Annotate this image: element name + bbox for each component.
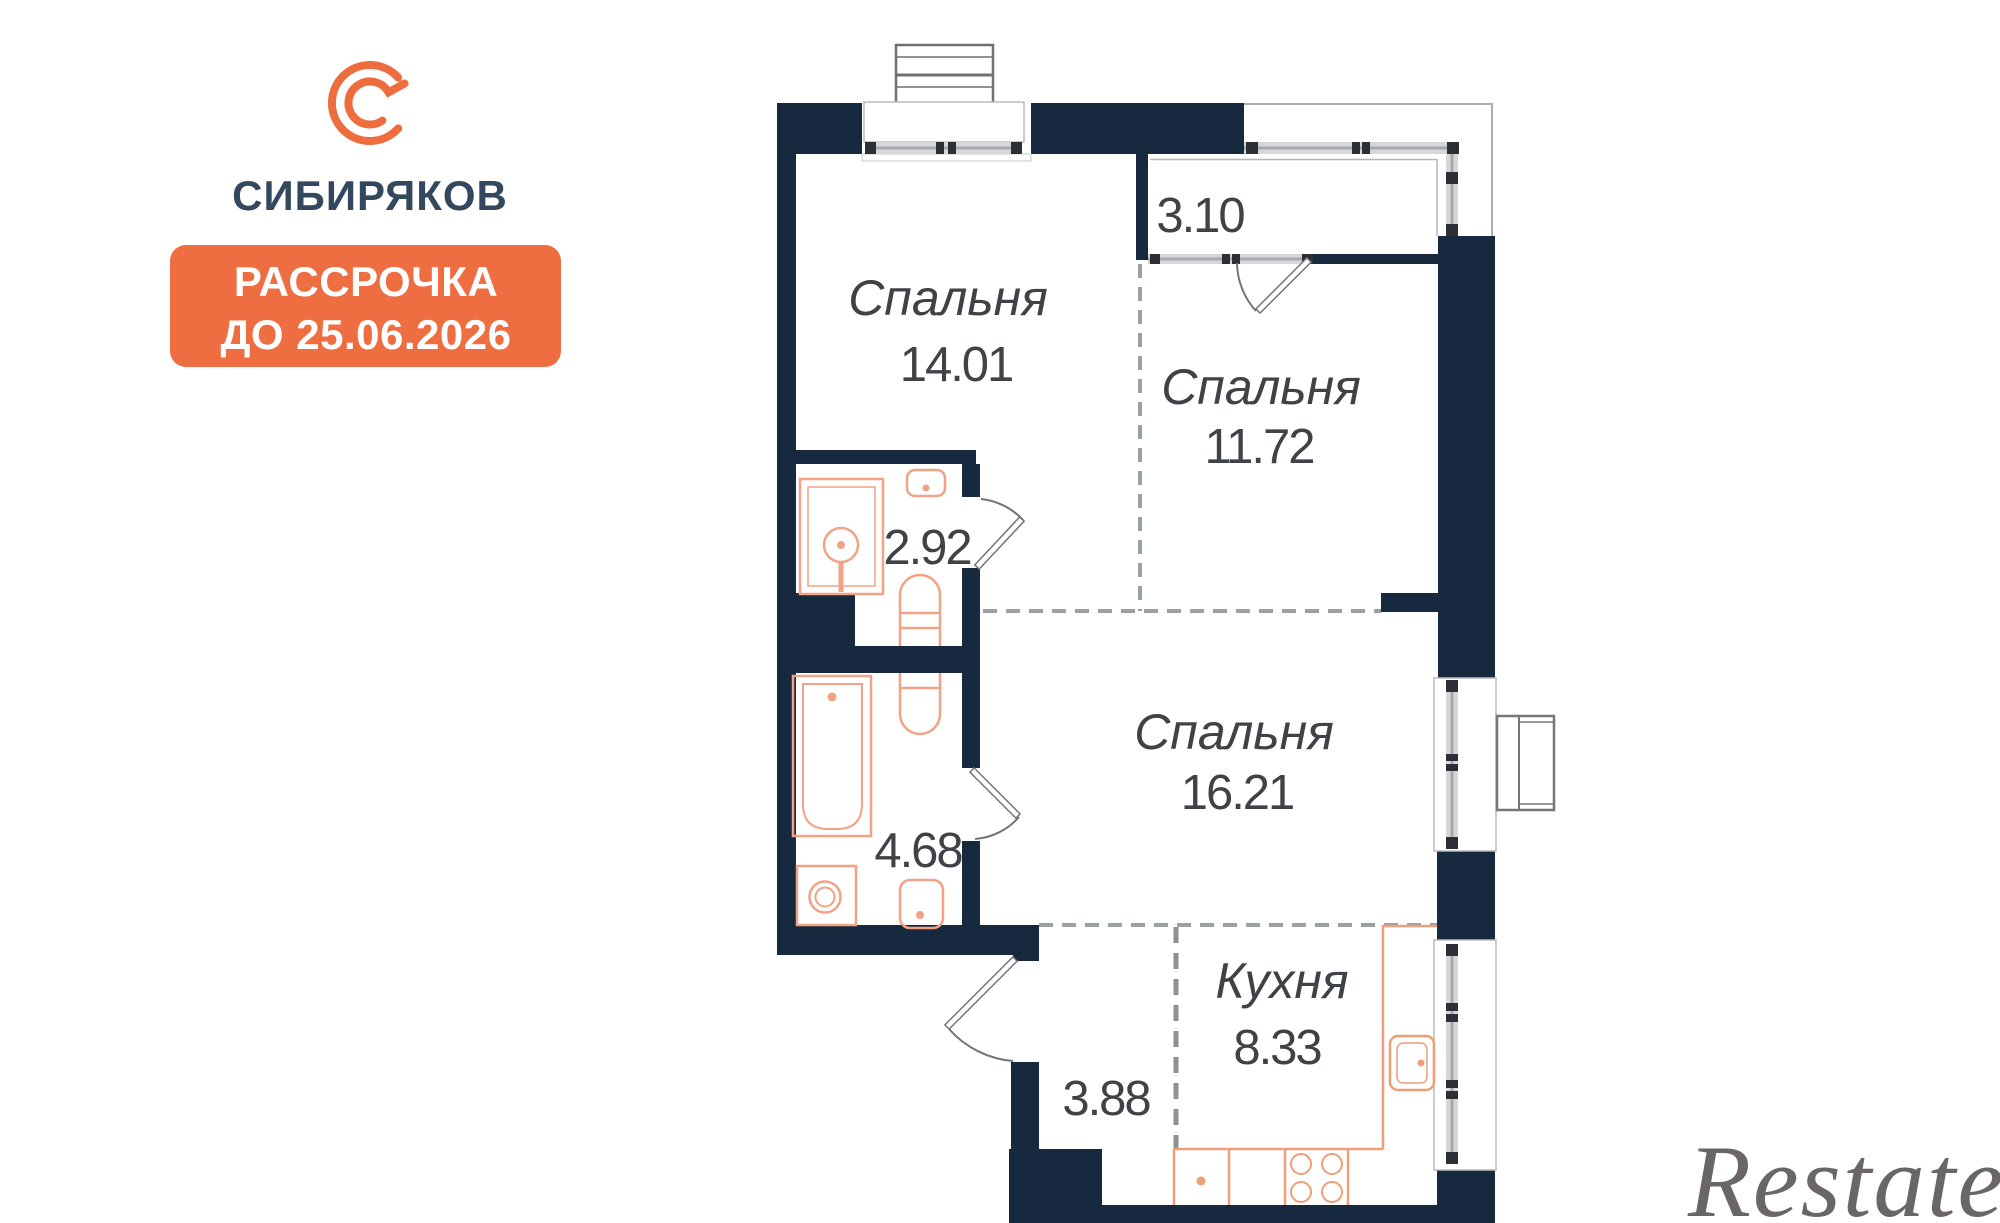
svg-text:4.68: 4.68 xyxy=(874,824,962,878)
svg-text:14.01: 14.01 xyxy=(900,338,1013,392)
svg-text:Спальня: Спальня xyxy=(1134,704,1334,760)
svg-text:Спальня: Спальня xyxy=(1161,359,1361,415)
svg-text:СИБИРЯКОВ: СИБИРЯКОВ xyxy=(232,172,508,219)
svg-text:3.10: 3.10 xyxy=(1156,189,1244,243)
svg-text:11.72: 11.72 xyxy=(1205,420,1314,474)
svg-text:Кухня: Кухня xyxy=(1215,953,1348,1009)
svg-text:Спальня: Спальня xyxy=(848,270,1048,326)
svg-text:ДО 25.06.2026: ДО 25.06.2026 xyxy=(221,311,512,358)
svg-text:16.21: 16.21 xyxy=(1181,766,1294,820)
svg-text:8.33: 8.33 xyxy=(1233,1021,1321,1075)
svg-text:Restate: Restate xyxy=(1687,1125,2000,1223)
svg-text:РАССРОЧКА: РАССРОЧКА xyxy=(234,258,498,305)
svg-text:2.92: 2.92 xyxy=(883,521,970,575)
svg-text:3.88: 3.88 xyxy=(1062,1072,1150,1126)
